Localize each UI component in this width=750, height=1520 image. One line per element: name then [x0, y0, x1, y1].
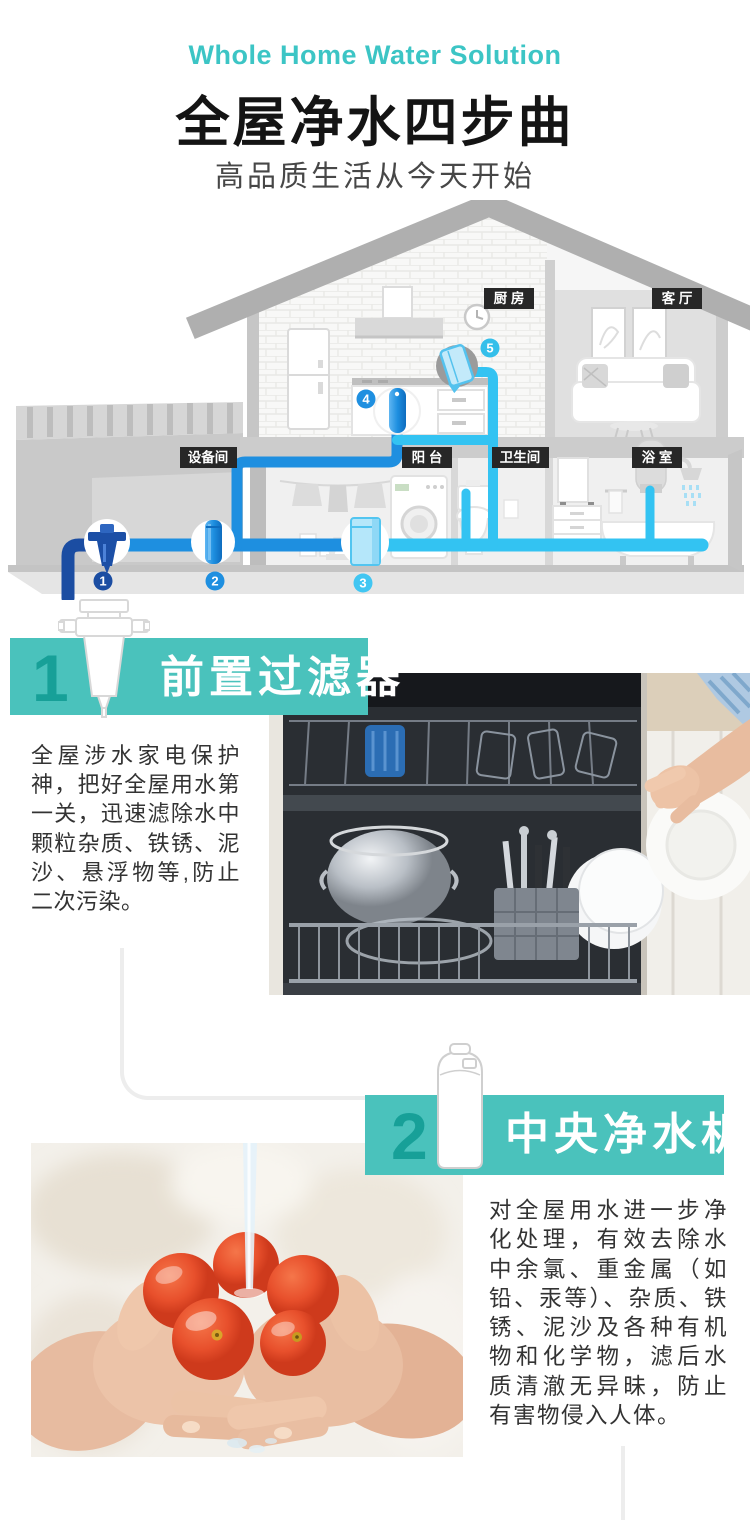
blue-cup	[365, 725, 405, 777]
marker-1-number: 1	[99, 574, 106, 589]
page-title: 全屋净水四步曲	[0, 78, 750, 157]
section-2-number: 2	[391, 1101, 428, 1171]
section-2-banner: 2 中央净水机	[365, 1095, 724, 1175]
towel	[609, 491, 622, 513]
english-subtitle: Whole Home Water Solution	[0, 40, 750, 71]
picture-frame	[592, 308, 625, 360]
promo-page: Whole Home Water Solution 全屋净水四步曲 高品质生活从…	[0, 0, 750, 1520]
marker-5-number: 5	[486, 341, 493, 356]
device-central-purifier	[191, 520, 235, 564]
central-purifier-tank-icon	[433, 1042, 487, 1172]
page-subtitle: 高品质生活从今天开始	[0, 153, 750, 195]
mirror	[558, 458, 588, 502]
room-label-balcony: 阳 台	[412, 449, 443, 465]
section-1-description: 全屋涉水家电保护神，把好全屋用水第一关，迅速滤除水中颗粒杂质、铁锈、泥沙、悬浮物…	[31, 741, 240, 916]
house-cutaway-illustration: 1 2 3 4 5 厨 房 客 厅 设备间 阳 台 卫生间 浴 室	[0, 200, 750, 600]
section-2-title: 中央净水机	[505, 1110, 750, 1160]
room-label-kitchen: 厨 房	[494, 290, 525, 306]
towel	[504, 500, 518, 518]
marker-4-number: 4	[362, 392, 370, 407]
hanging-shirt	[328, 485, 348, 512]
device-softener	[341, 518, 389, 566]
range-hood	[355, 318, 443, 337]
section-1-title: 前置过滤器	[160, 653, 405, 703]
ground	[8, 565, 744, 594]
room-divider-upper	[545, 260, 555, 455]
room-label-equipment: 设备间	[188, 449, 229, 465]
section-2-description: 对全屋用水进一步净化处理，有效去除水中余氯、重金属（如铅、汞等）、杂质、铁锈、泥…	[489, 1196, 728, 1430]
next-section-connector-line	[621, 1446, 625, 1520]
marker-3-number: 3	[359, 576, 366, 591]
range-hood-chimney	[383, 287, 412, 318]
tomatoes-photo	[31, 1143, 463, 1457]
dishwasher-photo	[269, 673, 750, 995]
room-label-toilet: 卫生间	[500, 449, 541, 465]
room-label-living: 客 厅	[661, 290, 693, 306]
section-1-banner: 1 前置过滤器	[10, 638, 368, 715]
room-label-bath: 浴 室	[642, 449, 673, 465]
prefilter-icon	[58, 598, 150, 720]
hanging-shirt	[354, 484, 386, 508]
device-undersink-purifier	[374, 388, 420, 434]
hanging-shirt	[292, 484, 322, 506]
section-connector-line	[120, 948, 372, 1100]
marker-2-number: 2	[211, 574, 218, 589]
